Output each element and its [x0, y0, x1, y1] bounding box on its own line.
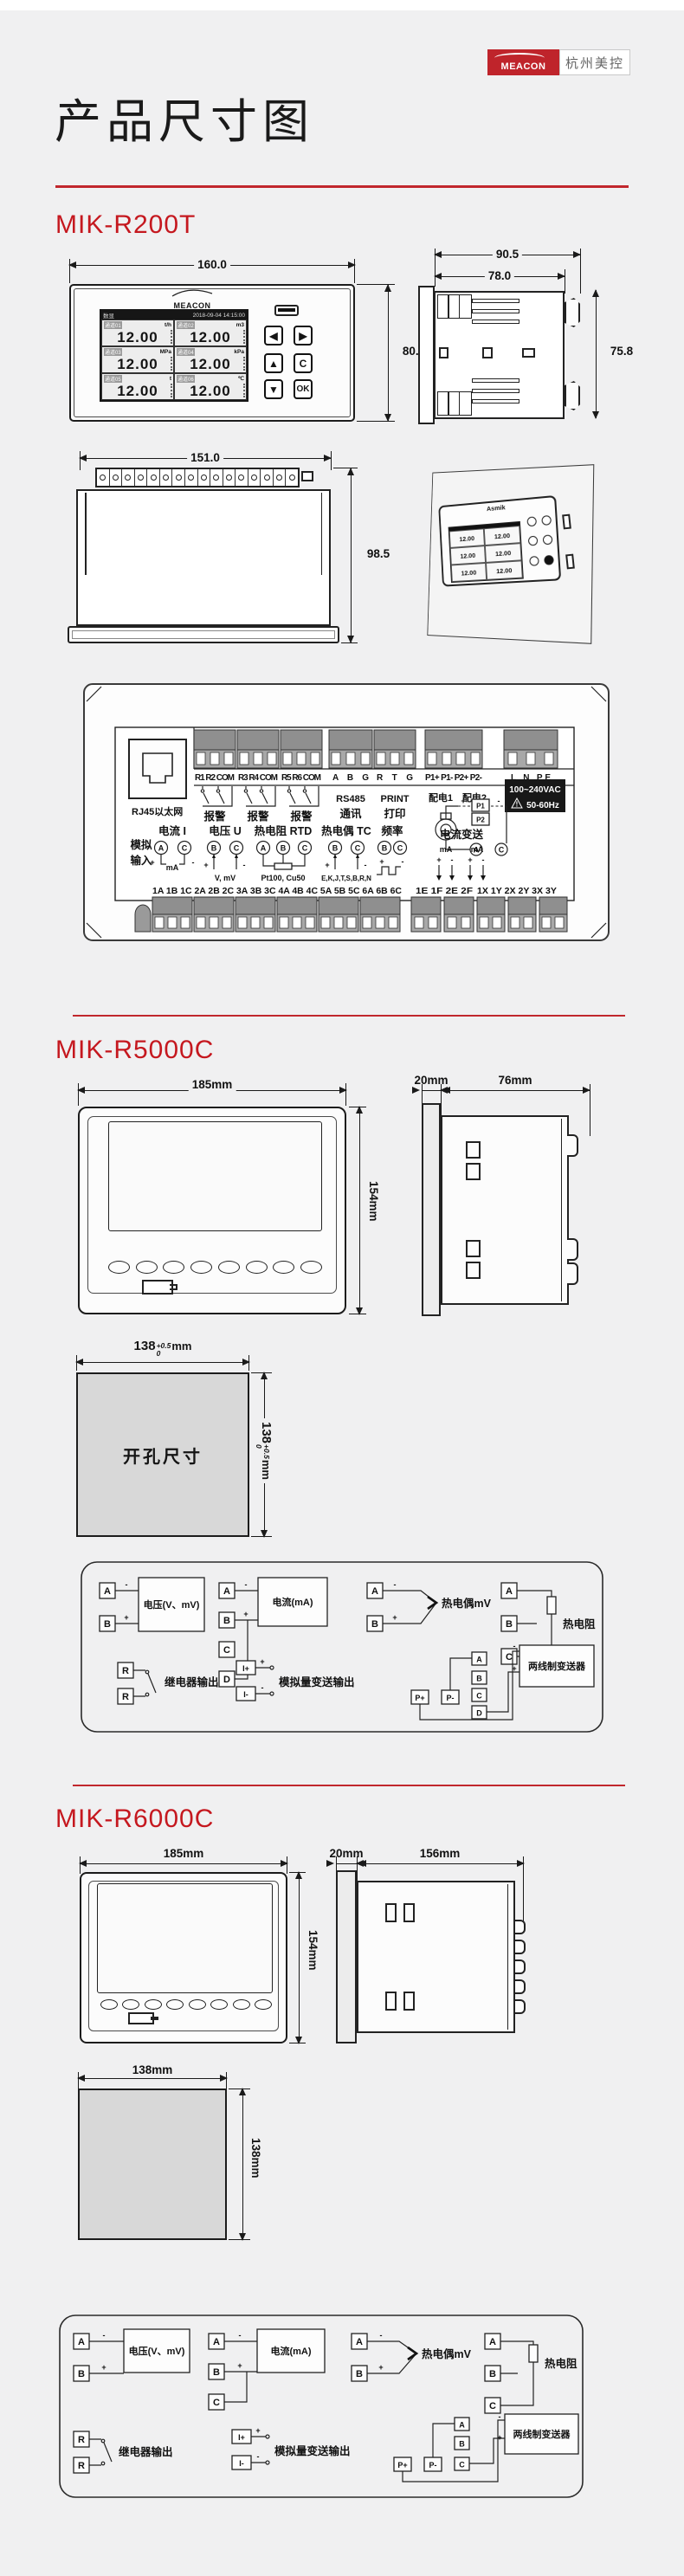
vent-slot — [472, 299, 519, 303]
dim-line-side-height — [596, 290, 597, 418]
usb-port — [142, 1280, 173, 1294]
terminal-i-plus: I+ — [242, 1664, 249, 1673]
minus-sign: - — [261, 1683, 264, 1692]
ext-line — [251, 1372, 272, 1373]
channel-name: 通道03 — [104, 348, 122, 356]
plus-sign: + — [468, 855, 472, 864]
terminal-a: A — [213, 2337, 220, 2347]
top-white-strip — [0, 0, 684, 10]
ext-line — [345, 1083, 346, 1106]
dim-label-total-depth: 90.5 — [493, 248, 522, 261]
print-label-cn: 打印 — [384, 807, 405, 820]
panel-clip — [567, 1134, 578, 1157]
persp-keys — [526, 512, 555, 570]
p1-terminal: P1 — [476, 803, 485, 810]
model-heading-r6000c: MIK-R6000C — [55, 1804, 214, 1834]
term-circle: B — [211, 844, 217, 853]
channel-value: 12.00 — [102, 329, 173, 345]
term-circle: C — [355, 844, 361, 853]
ma-label: mA — [471, 845, 484, 854]
terminal-i-minus: I- — [243, 1690, 248, 1699]
ext-line — [289, 2043, 306, 2043]
rtd-label: 热电阻 — [545, 2357, 578, 2370]
terminal-c: C — [459, 2461, 465, 2469]
usb-port — [274, 305, 299, 316]
rtd-label: 热电阻 — [563, 1617, 596, 1630]
ma-label: mA — [440, 845, 453, 854]
terminal-p-plus: P+ — [397, 2461, 407, 2469]
dim-line — [80, 1863, 287, 1864]
terminal-b: B — [459, 2440, 465, 2449]
minus-sign: - — [451, 855, 454, 864]
ext-line — [357, 1856, 358, 1882]
key-c: C — [294, 353, 313, 373]
dim-line-depth — [441, 1090, 590, 1091]
ext-line — [349, 1107, 366, 1107]
dim-line-bezel — [336, 1863, 357, 1864]
terminal-a: A — [356, 2337, 363, 2347]
persp-screen: 12.00 12.00 12.00 12.00 12.00 12.00 — [448, 521, 524, 583]
dim-label-top-height: 98.5 — [364, 547, 393, 560]
ext-line — [357, 284, 395, 285]
panel-clip — [567, 1262, 578, 1285]
ext-line — [248, 1355, 249, 1371]
transmitter-label: 两线制变送器 — [513, 2428, 571, 2440]
cutout-dim-top: 138+0.50mm — [131, 1339, 196, 1357]
terminal-numbers-relay: 1X 1Y 2X 2Y 3X 3Y — [477, 887, 557, 896]
tc-note: E,K,J,T,S,B,R,N — [321, 875, 371, 882]
ext-line — [289, 1872, 306, 1873]
ext-line — [341, 642, 358, 643]
dim-line — [299, 1872, 300, 2043]
ai-freq-title: 频率 — [381, 824, 403, 837]
plus-sign: + — [243, 1610, 248, 1618]
screen-grid: 通道01t/h12.00 通道02m312.00 通道03MPa12.00 通道… — [101, 320, 247, 400]
term-circle: C — [234, 844, 240, 853]
plus-sign: + — [101, 2363, 106, 2372]
panel-clip — [567, 1238, 578, 1261]
side-hole — [403, 1992, 415, 2011]
terminal-c: C — [476, 1692, 482, 1701]
terminal-numbers-retrans: 1E 1F 2E 2F — [416, 887, 473, 896]
plus-sign: + — [378, 2363, 383, 2372]
persp-clip — [565, 554, 575, 570]
terminal-screw — [185, 469, 198, 486]
panel-clip — [565, 381, 580, 410]
dim-label-vertical: 154mm — [307, 1927, 319, 1974]
term-circle: C — [302, 844, 308, 853]
persp-value: 12.00 — [451, 563, 487, 582]
perspective-device: Asmik 12.00 12.00 12.00 12.00 12.00 12.0… — [438, 495, 561, 587]
persp-key — [528, 536, 539, 546]
pin-group-label: R3 R4 COM — [238, 773, 278, 783]
transmitter-label: 两线制变送器 — [528, 1660, 586, 1672]
minus-sign: - — [394, 1580, 397, 1589]
side-hole — [439, 347, 448, 358]
alarm-label: 报警 — [203, 810, 226, 823]
ext-line — [78, 1083, 79, 1106]
r6000c-screen — [97, 1883, 273, 1993]
terminal-a: A — [459, 2421, 465, 2430]
terminal-r: R — [78, 2461, 85, 2471]
rtd-resistor — [274, 863, 292, 869]
side-hole — [466, 1262, 481, 1279]
terminal-b: B — [506, 1619, 513, 1630]
dim-line — [76, 1362, 249, 1363]
wiring-current-group — [219, 1578, 327, 1687]
ext-line — [331, 451, 332, 470]
rj45-label: RJ45以太网 — [132, 805, 183, 817]
terminal-c: C — [489, 2401, 496, 2411]
pin-group-label: R T G — [377, 773, 413, 783]
terminal-p-minus: P- — [429, 2461, 437, 2469]
persp-value: 12.00 — [450, 546, 486, 565]
persp-value: 12.00 — [485, 543, 522, 563]
panel-button — [210, 1999, 228, 2010]
r5000c-screen — [108, 1121, 322, 1231]
terminal-c: C — [213, 2398, 220, 2408]
dim-line-depth — [357, 1863, 524, 1864]
plus-sign: + — [260, 1657, 264, 1666]
r5000c-button-row — [108, 1261, 322, 1274]
r200t-base — [68, 626, 339, 643]
screen-timestamp: 2018-09-04 14:15:00 — [193, 313, 245, 319]
ext-line — [78, 2072, 79, 2089]
dim-line — [78, 2078, 227, 2079]
side-hole — [522, 348, 535, 358]
current-box-label: 电流(mA) — [270, 2345, 311, 2357]
dim-label-width: 160.0 — [194, 258, 230, 271]
panel-button — [108, 1261, 130, 1274]
minus-sign: - — [243, 861, 246, 869]
dim-label-bezel: 20mm — [326, 1847, 366, 1860]
vent-slot — [472, 399, 519, 404]
ext-line — [357, 421, 395, 422]
terminal-b: B — [489, 2369, 496, 2379]
channel-unit: t — [170, 376, 171, 382]
vent-slot — [472, 378, 519, 383]
ext-line — [226, 2072, 227, 2089]
mount-bracket — [437, 294, 472, 319]
terminal-b: B — [78, 2369, 85, 2379]
persp-clip — [562, 514, 571, 530]
screen-header: 数显 2018-09-04 14:15:00 — [101, 311, 247, 320]
plus-sign: + — [203, 861, 208, 869]
panel-button — [189, 1999, 206, 2010]
terminal-d: D — [223, 1675, 230, 1685]
panel-button — [246, 1261, 268, 1274]
terminal-p-minus: P- — [447, 1694, 455, 1702]
plus-sign: + — [379, 857, 384, 866]
channel-unit: t/h — [165, 322, 171, 328]
panel-clip — [565, 298, 580, 327]
panel-button — [145, 1999, 162, 2010]
ext-line — [565, 269, 565, 294]
terminal-a: A — [506, 1586, 513, 1597]
p2-terminal: P2 — [476, 817, 485, 824]
terminal-d: D — [476, 1709, 482, 1718]
dim-label: 185mm — [189, 1078, 236, 1091]
rj45-port — [129, 739, 186, 798]
channel-value: 12.00 — [102, 383, 173, 399]
r200t-front-view: MEACON 数显 2018-09-04 14:15:00 通道01t/h12.… — [69, 284, 355, 422]
aout-label: 模拟量变送输出 — [279, 1675, 355, 1688]
ext-line — [435, 249, 436, 287]
panel-button — [300, 1261, 322, 1274]
dim-line — [242, 2089, 243, 2240]
term-circle: B — [332, 844, 339, 853]
panel-clip — [515, 1999, 526, 2014]
terminal-screw — [274, 469, 287, 486]
channel-name: 通道04 — [177, 348, 195, 356]
channel-cell: 通道01t/h12.00 — [101, 320, 174, 346]
minus-sign: - — [498, 797, 500, 805]
terminal-b: B — [213, 2367, 220, 2378]
terminal-a: A — [476, 1656, 482, 1664]
ext-line — [69, 259, 70, 283]
minus-sign: - — [126, 1580, 128, 1589]
terminal-p-plus: P+ — [415, 1694, 424, 1702]
pin-group-label: P1+ P1- P2+ P2- — [425, 773, 482, 783]
dim-label-depth: 78.0 — [485, 269, 514, 282]
r6000c-wiring-diagram: A B - + 电压(V、mV) A B C - + 电流(mA) A B - … — [56, 2310, 589, 2502]
key-right: ▶ — [294, 326, 313, 345]
channel-value: 12.00 — [175, 329, 246, 345]
pin-group-label: R1 R2 COM — [195, 773, 235, 783]
term-circle: A — [158, 844, 165, 853]
ext-line — [349, 1314, 366, 1314]
vent-slot — [472, 389, 519, 393]
terminal-a: A — [371, 1586, 378, 1597]
page-title: 产品尺寸图 — [55, 83, 314, 152]
r200t-perspective-view: Asmik 12.00 12.00 12.00 12.00 12.00 12.0… — [405, 450, 613, 658]
panel-button — [255, 1999, 272, 2010]
minus-sign: - — [402, 857, 404, 866]
plus-sign: + — [255, 2426, 260, 2435]
key-left: ◀ — [264, 326, 283, 345]
power-voltage: 100~240VAC — [509, 785, 561, 795]
dim-line-height — [388, 285, 389, 421]
pin-group-label: A B G — [332, 773, 369, 783]
terminal-r: R — [122, 1666, 129, 1676]
cutout-dim-right: 138+0.50mm — [255, 1418, 274, 1483]
minus-sign: - — [192, 858, 195, 867]
tolerance-lower: 0 — [157, 1350, 171, 1358]
side-hole — [482, 347, 493, 358]
minus-sign: - — [103, 2331, 106, 2340]
power-dist1-label: 配电1 — [429, 791, 453, 804]
side-hole — [403, 1903, 415, 1922]
terminal-i-minus: I- — [239, 2459, 244, 2468]
terminal-b: B — [371, 1619, 378, 1630]
wiring-current-group — [209, 2329, 325, 2410]
retrans-title: 电流变送 — [440, 828, 484, 841]
channel-name: 通道01 — [104, 321, 122, 329]
ext-line — [354, 259, 355, 283]
side-hole — [466, 1240, 481, 1257]
ext-line — [580, 249, 581, 294]
channel-cell: 通道02m312.00 — [174, 320, 247, 346]
wiring-transmitter-group — [394, 2414, 578, 2482]
minus-sign: - — [513, 1642, 516, 1650]
terminal-a: A — [489, 2337, 496, 2347]
r5000c-side-body — [441, 1115, 569, 1305]
side-hole — [466, 1163, 481, 1180]
dim-label: 138mm — [129, 2063, 177, 2076]
terminal-b: B — [356, 2369, 363, 2379]
dim-label-top-width: 151.0 — [187, 451, 223, 464]
terminal-c: C — [506, 1652, 513, 1662]
rs485-label: RS485 — [336, 794, 365, 804]
persp-key — [526, 516, 537, 526]
company-name-box: 杭州美控 — [559, 49, 630, 75]
terminal-a: A — [104, 1586, 111, 1597]
channel-value: 12.00 — [175, 356, 246, 372]
key-down: ▼ — [264, 379, 283, 399]
terminal-screw — [97, 469, 110, 486]
terminal-screw — [160, 469, 173, 486]
key-up: ▲ — [264, 353, 283, 373]
terminal-c: C — [223, 1645, 230, 1656]
r200t-rear-terminal-diagram: RJ45以太网 R1 R2 COM R3 R4 COM R5 R6 COM A … — [82, 682, 610, 942]
terminal-screw — [261, 469, 274, 486]
ext-line — [80, 451, 81, 470]
terminal-numbers-analog: 1A 1B 1C 2A 2B 2C 3A 3B 3C 4A 4B 4C 5A 5… — [152, 887, 402, 896]
cutout-label: 开孔尺寸 — [123, 1443, 203, 1468]
side-hole — [466, 1141, 481, 1159]
terminal-screw — [147, 469, 160, 486]
channel-name: 通道06 — [177, 375, 195, 383]
analog-input-label1: 模拟 — [130, 838, 152, 851]
panel-button — [122, 1999, 139, 2010]
voltage-box-label: 电压(V、mV) — [129, 2345, 185, 2357]
dim-label-bezel: 20mm — [410, 1074, 451, 1087]
r5000c-front-view — [78, 1107, 346, 1314]
persp-key — [541, 515, 552, 526]
ext-line — [76, 1355, 77, 1371]
r200t-side-bezel — [418, 286, 435, 424]
rear-dome — [135, 905, 151, 932]
panel-button — [233, 1999, 250, 2010]
term-circle: C — [182, 844, 188, 853]
channel-name: 通道05 — [104, 375, 122, 383]
persp-value: 12.00 — [486, 560, 523, 580]
channel-cell: 通道03MPa12.00 — [101, 346, 174, 373]
current-box-label: 电流(mA) — [272, 1596, 313, 1608]
channel-unit: MPa — [160, 349, 171, 355]
ext-line — [251, 1536, 272, 1537]
r6000c-front-view — [80, 1872, 287, 2043]
plus-sign: + — [392, 1613, 397, 1622]
warning-mark: ! — [516, 801, 519, 809]
r200t-terminal-strip — [95, 468, 300, 487]
power-frequency: 50-60Hz — [526, 801, 559, 810]
rear-bottom-terminal-blocks — [152, 897, 567, 932]
r6000c-button-row — [100, 1999, 272, 2010]
terminal-screw — [135, 469, 148, 486]
brand-swoosh-icon — [171, 289, 214, 297]
channel-name: 通道02 — [177, 321, 195, 329]
dim-line-bezel — [422, 1090, 441, 1091]
terminal-a: A — [78, 2337, 85, 2347]
terminal-a: A — [223, 1586, 230, 1597]
terminal-b: B — [223, 1616, 230, 1626]
r5000c-side-bezel — [422, 1103, 441, 1316]
pin-group-label: R5 R6 COM — [281, 773, 321, 783]
r6000c-cutout-square — [78, 2089, 227, 2240]
dim-label-side-height: 75.8 — [607, 345, 636, 358]
term-circle: B — [281, 844, 287, 853]
channel-cell: 通道05t12.00 — [101, 373, 174, 400]
minus-sign: - — [482, 855, 485, 864]
meacon-logo: MEACON — [487, 49, 559, 75]
terminal-screw — [210, 469, 223, 486]
dim-line-top-height — [351, 468, 352, 642]
channel-cell: 通道04kPa12.00 — [174, 346, 247, 373]
term-circle: B — [382, 844, 388, 853]
r6000c-side-body — [357, 1881, 515, 2033]
panel-button — [218, 1261, 240, 1274]
panel-clip — [515, 1920, 526, 1934]
terminal-screw — [198, 469, 211, 486]
minus-sign: - — [499, 2412, 501, 2421]
ext-line — [80, 1856, 81, 1874]
channel-value: 12.00 — [175, 383, 246, 399]
cutout-dim-value: 138 — [134, 1339, 156, 1353]
tolerance-upper: +0.5 — [263, 1444, 271, 1459]
vent-slot — [472, 309, 519, 313]
section-divider — [73, 1785, 625, 1786]
r5000c-cutout-square: 开孔尺寸 — [76, 1372, 249, 1537]
r200t-top-body — [76, 489, 331, 626]
ai-tc-title: 热电偶 TC — [321, 824, 371, 837]
company-name: 杭州美控 — [565, 54, 624, 72]
channel-value: 12.00 — [102, 356, 173, 372]
logo-swoosh-icon — [494, 53, 545, 63]
vent-slot — [472, 320, 519, 324]
panel-button — [136, 1261, 158, 1274]
minus-sign: - — [380, 2331, 383, 2340]
plus-sign: + — [150, 858, 154, 867]
terminal-r: R — [78, 2435, 85, 2445]
model-heading-r5000c: MIK-R5000C — [55, 1036, 214, 1065]
alarm-label: 报警 — [247, 810, 269, 823]
analog-input-label2: 输入 — [130, 854, 152, 867]
term-circle: A — [261, 844, 267, 853]
ext-line — [287, 1856, 287, 1874]
tc-label: 热电偶mV — [442, 1597, 492, 1610]
terminal-screw — [248, 469, 261, 486]
dim-line — [359, 1107, 360, 1314]
tolerance-lower: 0 — [255, 1444, 263, 1459]
panel-button — [163, 1261, 184, 1274]
r6000c-side-bezel — [336, 1870, 357, 2043]
screen-mode: 数显 — [103, 311, 114, 320]
terminal-screw — [172, 469, 185, 486]
channel-cell: 通道06℃12.00 — [174, 373, 247, 400]
terminal-screw — [236, 469, 248, 486]
plus-sign: + — [497, 2433, 501, 2442]
channel-unit: m3 — [236, 322, 244, 328]
panel-button — [273, 1261, 294, 1274]
persp-key — [529, 556, 539, 566]
terminal-b: B — [104, 1619, 111, 1630]
print-label: PRINT — [381, 794, 410, 804]
persp-key-ok — [544, 555, 554, 565]
top-tab — [301, 471, 313, 481]
panel-button — [100, 1999, 118, 2010]
plus-sign: + — [237, 2361, 242, 2370]
